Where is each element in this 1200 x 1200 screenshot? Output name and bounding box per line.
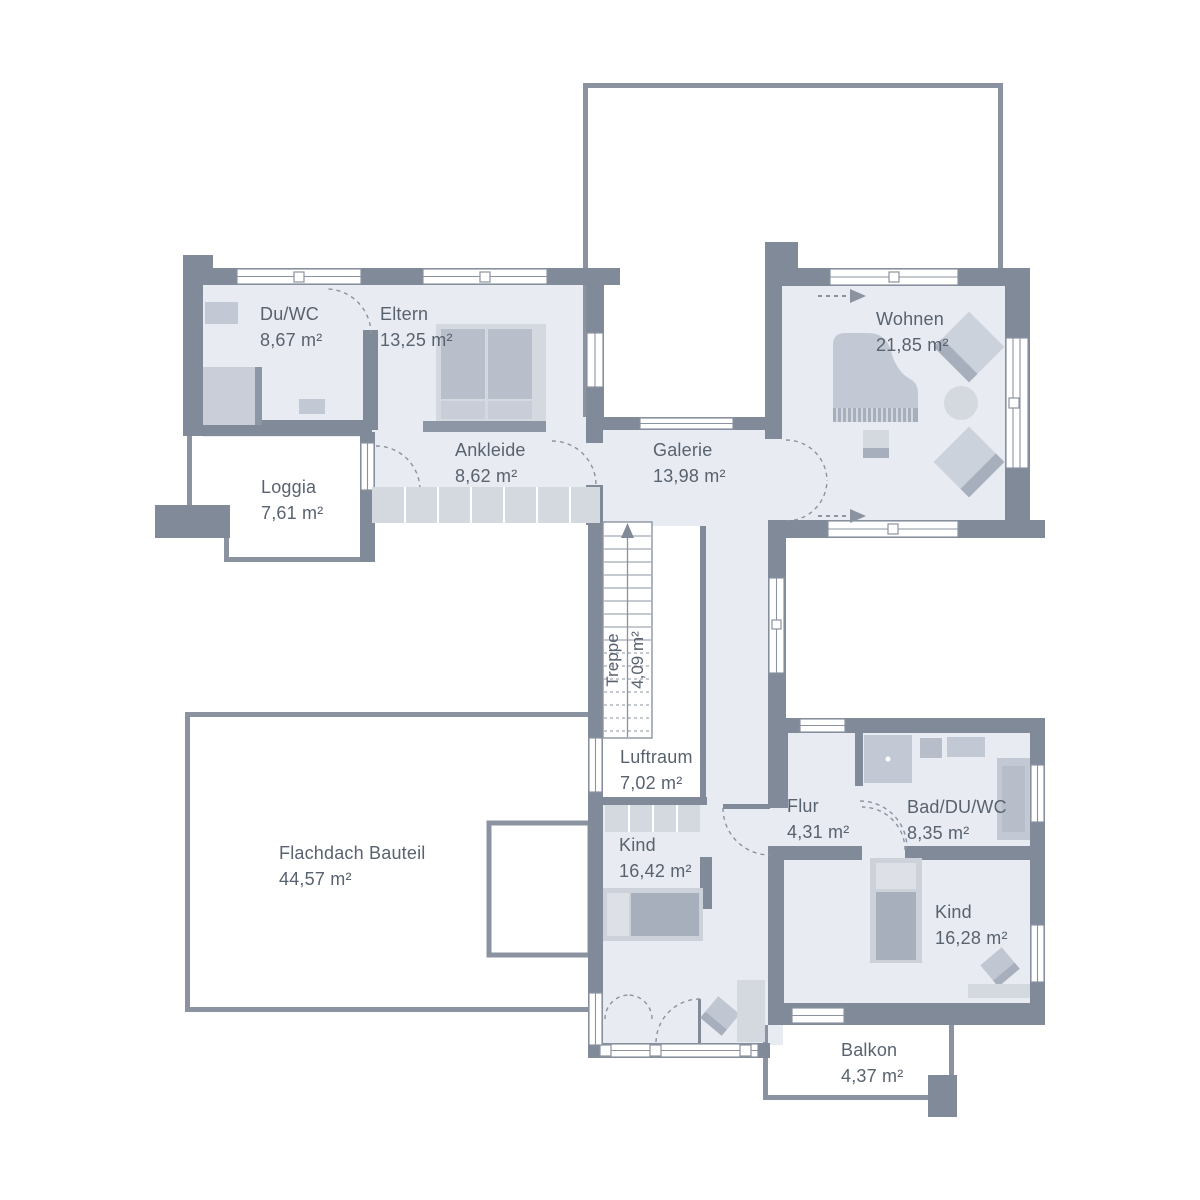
bed-kind1 [603,888,703,941]
bed-kind2 [870,858,922,963]
room-label-eltern: Eltern13,25 m² [380,301,453,353]
washbasin [947,737,985,757]
window-kind2-east [1031,925,1044,982]
wardrobe-kind1 [605,805,700,832]
desk-kind1 [737,980,765,1042]
room-label-galerie: Galerie13,98 m² [653,437,726,489]
room-label-ankleide: Ankleide8,62 m² [455,437,526,489]
wc [920,738,942,758]
room-label-kind2: Kind16,28 m² [935,899,1008,951]
window-galerie-top [640,418,733,429]
room-label-kind1: Kind16,42 m² [619,832,692,884]
washbasin [205,302,238,324]
side-table [863,430,889,458]
door-leaf-kind1 [698,999,701,1043]
wardrobe-ankleide [372,487,600,523]
room-label-balkon: Balkon4,37 m² [841,1037,903,1089]
window-wohnen-east [1006,338,1028,468]
window-luftraum-west [589,738,602,792]
room-label-flachdach: Flachdach Bauteil44,57 m² [279,840,426,892]
window-bad-east [1031,765,1044,822]
window-wohnen-bottom [828,521,958,537]
window-corridor-west [769,578,784,673]
room-label-luftraum: Luftraum7,02 m² [620,744,693,796]
flachdach-notch [489,823,590,955]
floor-plan: Du/WC8,67 m² Eltern13,25 m² Ankleide8,62… [0,0,1200,1200]
window-kind1-bottom [600,1044,758,1057]
room-label-flur: Flur4,31 m² [787,793,849,845]
window-eltern-top [423,269,547,284]
room-label-duwc: Du/WC8,67 m² [260,301,322,353]
window-loggia-door [361,443,374,490]
room-label-loggia: Loggia7,61 m² [261,474,323,526]
window-duwc-top [237,269,361,284]
shower-partition [255,367,262,425]
round-table [944,386,978,420]
room-label-wohnen: Wohnen21,85 m² [876,306,949,358]
window-flur-top [800,719,845,732]
room-label-treppe: Treppe4,09 m² [600,600,652,720]
window-eltern-east [587,333,603,387]
window-wohnen-top [830,269,958,285]
wc [299,399,325,414]
window-kind2-bottom [792,1008,844,1023]
room-label-bad: Bad/DU/WC8,35 m² [907,794,1007,846]
shower [203,367,257,425]
window-kind1-west [589,993,602,1045]
door-leaf-flur [723,804,770,809]
desk-kind2 [968,984,1030,998]
